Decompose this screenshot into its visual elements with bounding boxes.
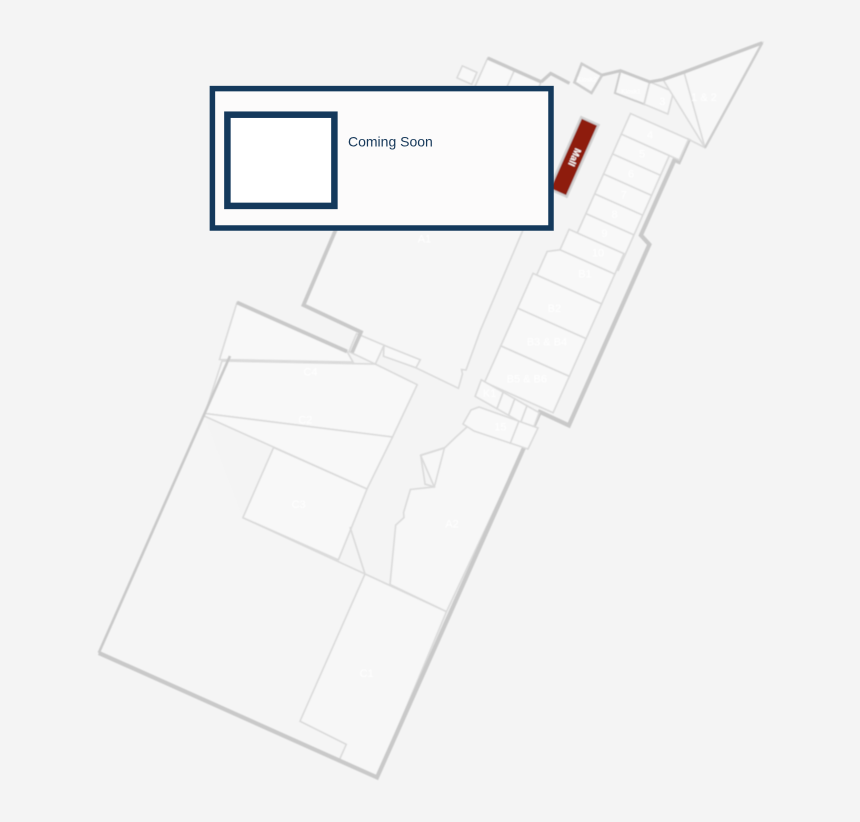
svg-text:6: 6 <box>628 168 634 180</box>
svg-text:C2: C2 <box>298 415 312 427</box>
svg-text:Coming Soon: Coming Soon <box>348 134 433 150</box>
svg-text:C4: C4 <box>303 366 317 378</box>
svg-text:A1: A1 <box>418 233 431 245</box>
svg-text:B5 & B6: B5 & B6 <box>507 374 547 386</box>
svg-text:K1: K1 <box>483 388 496 400</box>
svg-text:B2: B2 <box>548 303 561 315</box>
svg-text:B1: B1 <box>578 269 591 281</box>
svg-text:8: 8 <box>612 209 618 221</box>
svg-text:9: 9 <box>601 228 607 240</box>
svg-text:1 & 2: 1 & 2 <box>691 92 717 104</box>
svg-text:4: 4 <box>647 129 653 141</box>
svg-text:7: 7 <box>621 190 627 202</box>
svg-text:3: 3 <box>659 96 665 108</box>
svg-text:5: 5 <box>639 148 645 160</box>
svg-text:Kiosk1: Kiosk1 <box>621 89 641 96</box>
svg-text:B3 & B4: B3 & B4 <box>527 336 567 348</box>
svg-text:Kiosk2: Kiosk2 <box>577 76 597 83</box>
svg-text:10: 10 <box>592 248 604 260</box>
svg-text:C1: C1 <box>360 668 374 680</box>
svg-text:15: 15 <box>494 421 506 433</box>
svg-text:C3: C3 <box>292 499 306 511</box>
svg-text:A2: A2 <box>445 518 458 530</box>
